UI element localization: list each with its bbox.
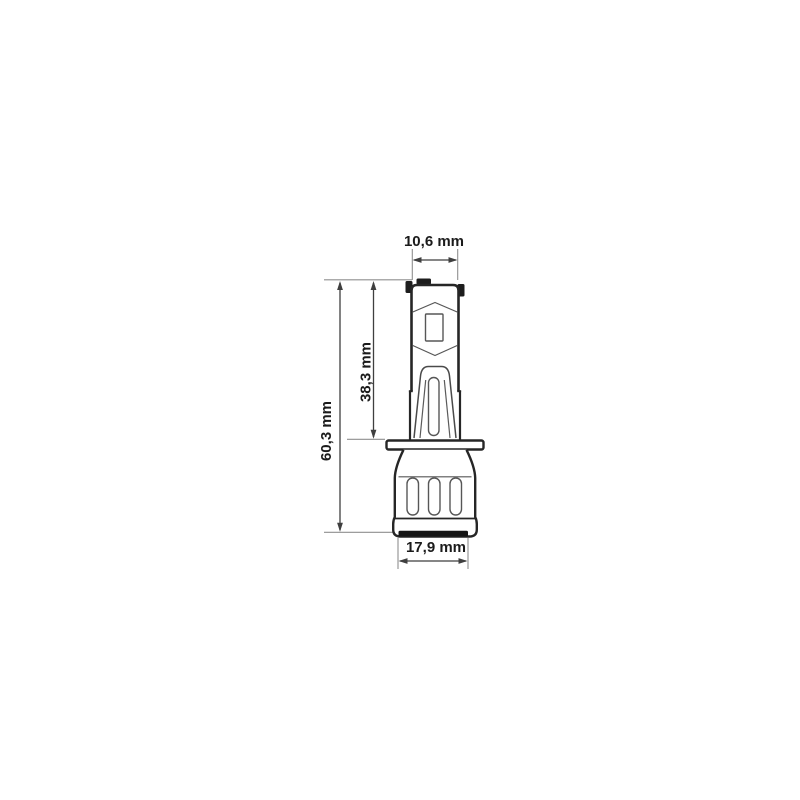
arrowhead [371,430,377,439]
base-slot-right [450,478,462,515]
flange [387,441,484,450]
arrowhead [337,523,343,532]
tower-slot [429,378,440,436]
diagram-canvas: 10,6 mm 17,9 mm 38,3 mm 60,3 mm [0,0,800,800]
dim-label-top-width: 10,6 mm [404,233,464,250]
arrowhead [459,558,468,564]
arrowhead [337,281,343,290]
bulb-dimension-diagram: 10,6 mm 17,9 mm 38,3 mm 60,3 mm [0,0,800,800]
dim-label-total-height: 60,3 mm [318,401,335,461]
arrowhead [413,257,422,263]
arrowhead [371,281,377,290]
arrowhead [449,257,458,263]
base-bottom-contact [399,531,469,537]
dim-label-body-height: 38,3 mm [358,342,375,402]
led-window [426,314,444,341]
base-slot-middle [429,478,441,515]
arrowhead [399,558,408,564]
dim-label-base-width: 17,9 mm [406,539,466,556]
top-cap-bump [417,279,432,285]
bulb-drawing [387,279,484,537]
base-slot-left [407,478,419,515]
